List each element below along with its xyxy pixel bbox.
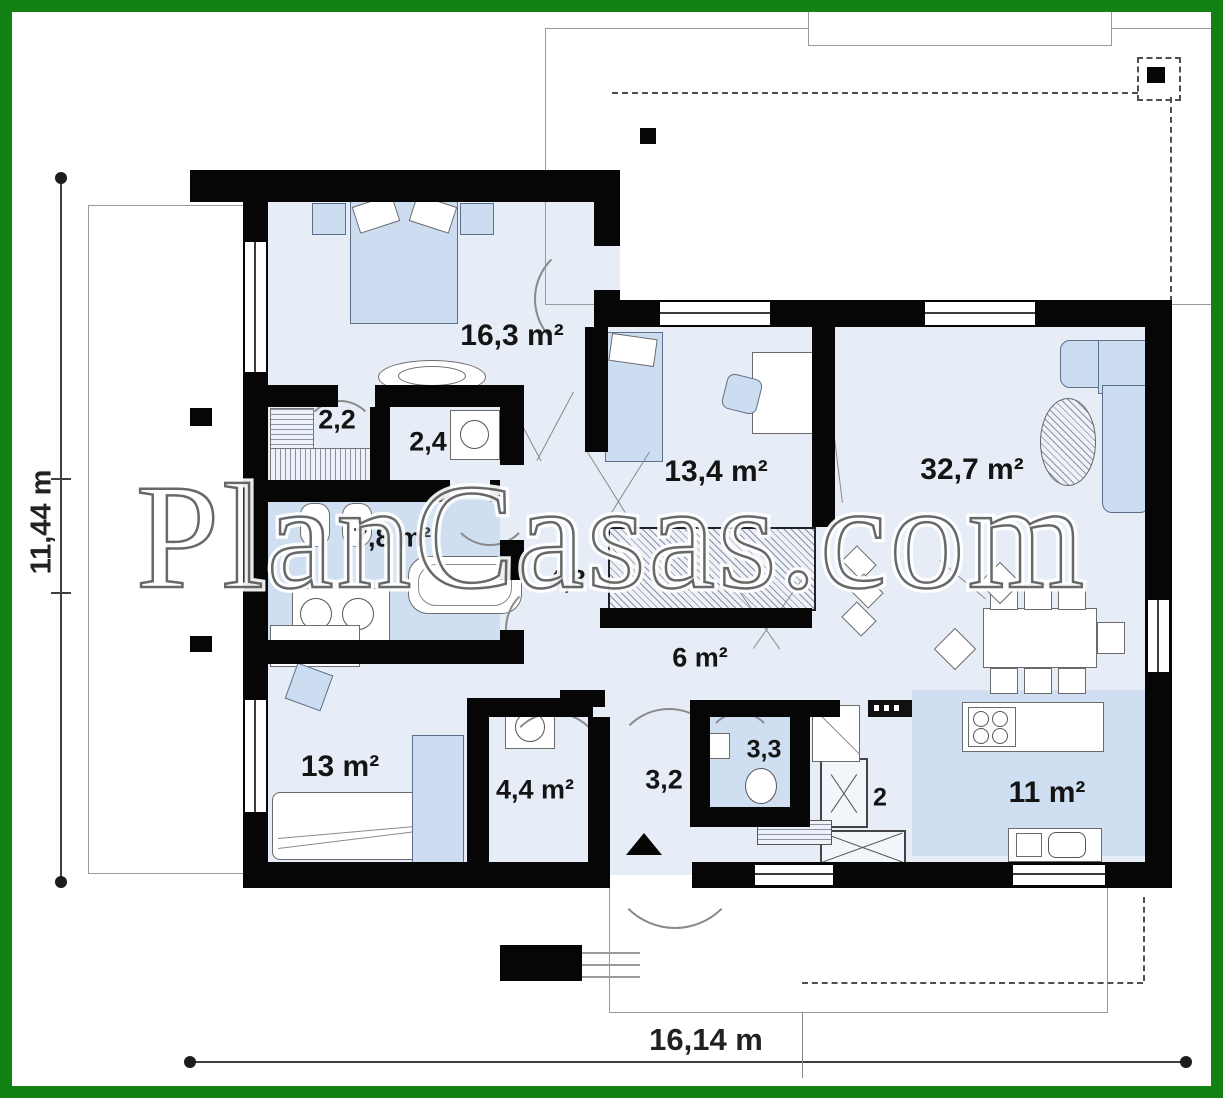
stove-burner <box>973 728 989 744</box>
roof-outline <box>545 28 1212 305</box>
window-glass-line <box>755 873 833 875</box>
terrace-pillar <box>190 408 212 426</box>
room-label-wardrobe: 2,2 <box>318 405 356 436</box>
room-label-utility: 4,4 m² <box>496 775 574 806</box>
vanity-table-inner <box>398 366 466 386</box>
wall-segment <box>1145 300 1172 888</box>
room-label-hall-center: 6 m² <box>672 643 728 674</box>
dining-chair <box>1058 668 1086 694</box>
terrace-pillar <box>190 636 212 652</box>
dimension-line-horizontal <box>190 1061 1186 1063</box>
wall-segment <box>467 698 489 862</box>
porch-dashed-line <box>1143 897 1145 981</box>
wall-segment <box>243 862 610 888</box>
nightstand <box>312 203 346 235</box>
dimension-tick <box>51 592 71 594</box>
window <box>755 865 833 885</box>
wall-segment <box>190 170 620 202</box>
washbasin-bowl <box>460 420 489 449</box>
dimension-dot <box>55 172 67 184</box>
room-label-pantry: 2 <box>873 784 887 813</box>
window-glass-line <box>1013 873 1105 875</box>
kitchen-sink-bowl <box>1048 832 1086 858</box>
corner-sofa <box>1102 385 1150 513</box>
dimension-label-height: 11,44 m <box>26 470 59 575</box>
room-label-wc: 3,3 <box>747 736 782 765</box>
porch-dashed-line <box>802 982 1143 984</box>
wall-segment <box>594 202 620 246</box>
dimension-label-width: 16,14 m <box>649 1022 763 1058</box>
dimension-dot <box>184 1056 196 1068</box>
window-glass-line <box>925 312 1035 314</box>
roof-overhang-dashed-line <box>612 92 1138 94</box>
stove-burner <box>992 728 1008 744</box>
wall-segment <box>588 717 610 862</box>
step-line <box>582 952 640 954</box>
wall-segment <box>268 640 524 664</box>
counter-dot <box>874 705 879 711</box>
watermark-text: PlanCasas.com <box>136 451 1087 623</box>
nightstand <box>460 203 494 235</box>
wall-segment <box>375 385 500 407</box>
dining-chair <box>1097 622 1125 654</box>
window-glass-line <box>1157 600 1159 672</box>
entrance-arrow-icon <box>626 833 662 855</box>
dining-chair <box>990 668 1018 694</box>
window-glass-line <box>660 312 770 314</box>
stove-burner <box>992 711 1008 727</box>
wall-segment <box>690 700 710 810</box>
bed-vertical <box>412 735 464 863</box>
room-label-kitchen: 11 m² <box>1009 776 1086 810</box>
wall-segment <box>790 717 810 827</box>
roof-post <box>640 128 656 144</box>
room-label-entry: 3,2 <box>645 765 683 796</box>
dimension-dot <box>55 876 67 888</box>
roof-post <box>1147 67 1165 83</box>
chimney <box>808 10 1112 46</box>
storage-cabinet <box>820 830 906 864</box>
wall-segment <box>690 700 840 717</box>
desk <box>752 352 814 434</box>
window-glass-line <box>254 242 256 372</box>
storage-cabinet <box>820 758 868 828</box>
dining-chair <box>1024 668 1052 694</box>
entrance-steps <box>500 945 582 981</box>
window-glass-line <box>254 700 256 812</box>
dimension-dot <box>1180 1056 1192 1068</box>
window <box>1013 865 1105 885</box>
wall-segment <box>585 327 608 452</box>
dimension-line-vertical <box>60 178 62 882</box>
counter-dot <box>884 705 889 711</box>
roof-overhang-dashed-line <box>1170 97 1172 302</box>
floor-plan-canvas: 16,3 m² 2,2 2,4 7,8 m² 4,8 13,4 m² 32,7 … <box>0 0 1223 1098</box>
step-line <box>582 964 640 966</box>
room-label-bedroom-1: 16,3 m² <box>460 319 563 353</box>
step-line <box>582 976 640 978</box>
dimension-connector <box>802 1012 803 1078</box>
kitchen-sink-bowl <box>1016 833 1042 857</box>
stove-burner <box>973 711 989 727</box>
room-label-bedroom-3: 13 m² <box>301 750 379 784</box>
counter-dot <box>894 705 899 711</box>
